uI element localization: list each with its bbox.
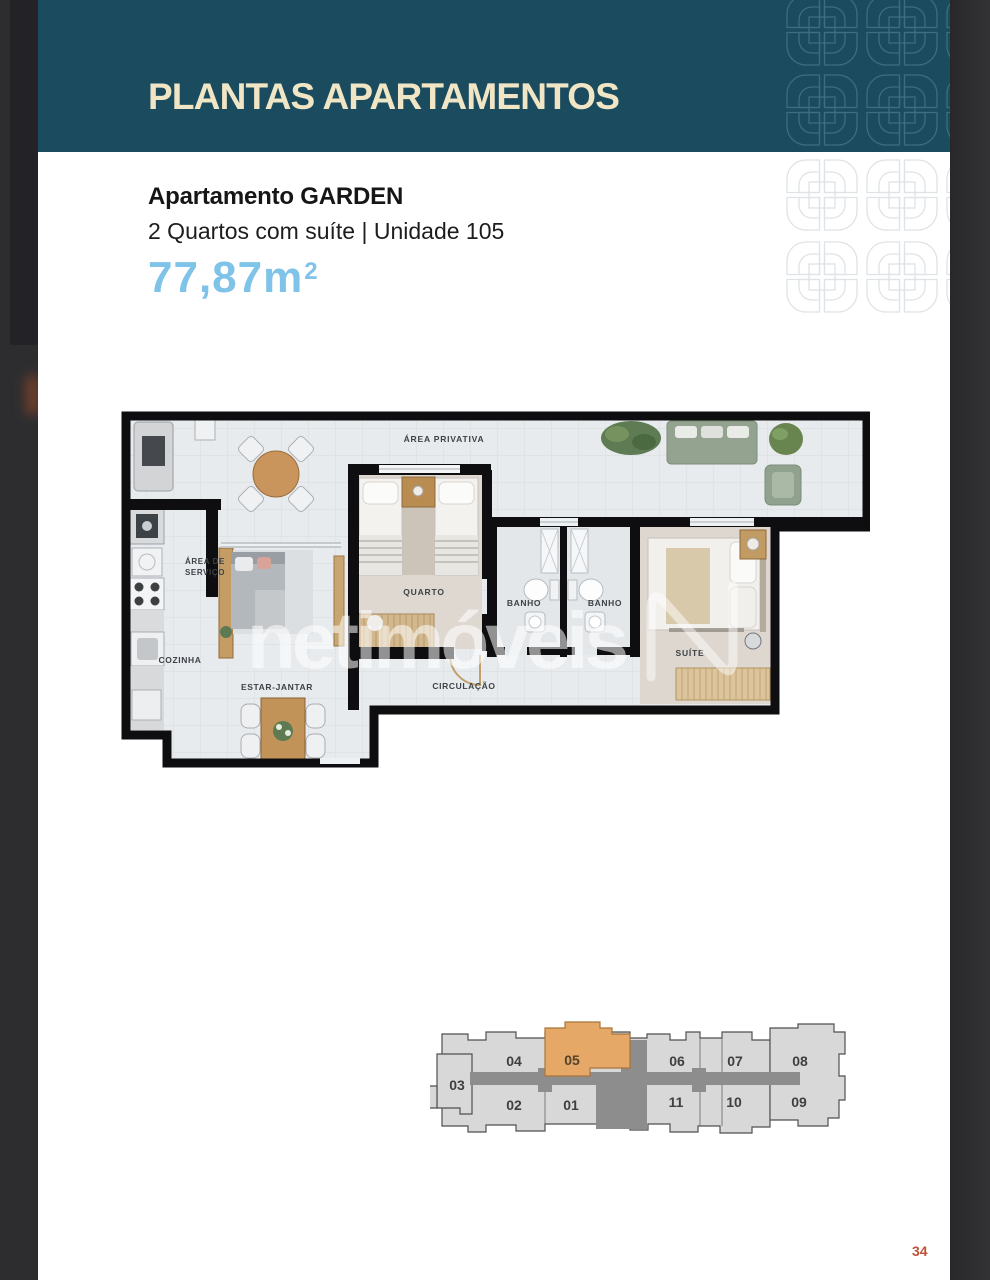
- svg-text:netimóveis: netimóveis: [247, 596, 626, 685]
- svg-text:04: 04: [506, 1053, 522, 1069]
- svg-text:06: 06: [669, 1053, 685, 1069]
- svg-text:SUÍTE: SUÍTE: [675, 648, 704, 658]
- svg-text:11: 11: [669, 1094, 684, 1110]
- svg-text:SERVIÇO: SERVIÇO: [185, 568, 225, 577]
- svg-text:10: 10: [726, 1094, 742, 1110]
- svg-text:05: 05: [564, 1052, 580, 1068]
- svg-text:09: 09: [791, 1094, 807, 1110]
- svg-text:08: 08: [792, 1053, 808, 1069]
- svg-text:02: 02: [506, 1097, 522, 1113]
- svg-text:COZINHA: COZINHA: [159, 655, 202, 665]
- svg-text:03: 03: [449, 1077, 465, 1093]
- svg-text:ÁREA PRIVATIVA: ÁREA PRIVATIVA: [404, 434, 485, 444]
- svg-text:07: 07: [727, 1053, 743, 1069]
- svg-text:ÁREA DE: ÁREA DE: [185, 557, 225, 566]
- svg-text:01: 01: [563, 1097, 579, 1113]
